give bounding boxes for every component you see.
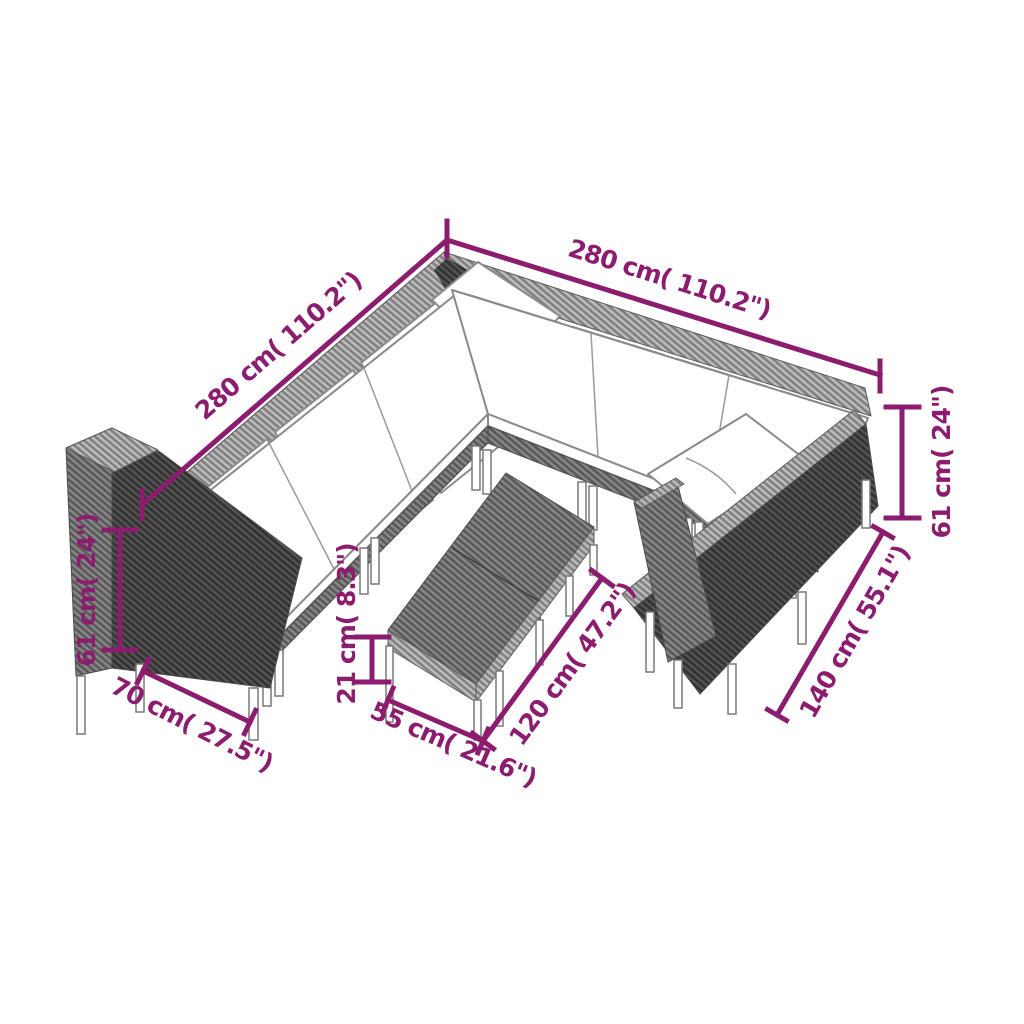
dim-tick xyxy=(592,570,613,585)
dim-right-height: 61 cm( 24") xyxy=(886,386,956,539)
sofa-leg xyxy=(371,538,379,584)
product-dimension-diagram: 280 cm( 110.2") 280 cm( 110.2") 61 cm( 2… xyxy=(0,0,1024,1024)
dim-table-height-label: 21 cm( 8.3") xyxy=(332,543,361,704)
sofa-leg xyxy=(77,676,85,734)
sofa-leg xyxy=(674,660,682,708)
sofa-leg xyxy=(862,480,870,528)
sofa-set-illustration xyxy=(66,252,878,740)
dim-table-height: 21 cm( 8.3") xyxy=(332,543,389,704)
sofa-leg xyxy=(646,612,654,672)
sofa-leg xyxy=(728,664,736,714)
table-leg xyxy=(566,576,573,616)
sofa-leg xyxy=(483,450,491,494)
sofa-leg xyxy=(589,486,597,530)
dim-left-height-label: 61 cm( 24") xyxy=(72,514,101,667)
diagram-canvas: 280 cm( 110.2") 280 cm( 110.2") 61 cm( 2… xyxy=(0,0,1024,1024)
dim-right-height-label: 61 cm( 24") xyxy=(927,386,956,539)
sofa-leg xyxy=(472,446,480,490)
dim-table-width-label: 55 cm( 21.6") xyxy=(366,696,541,793)
sofa-leg xyxy=(798,592,806,644)
sofa-leg xyxy=(360,548,368,594)
